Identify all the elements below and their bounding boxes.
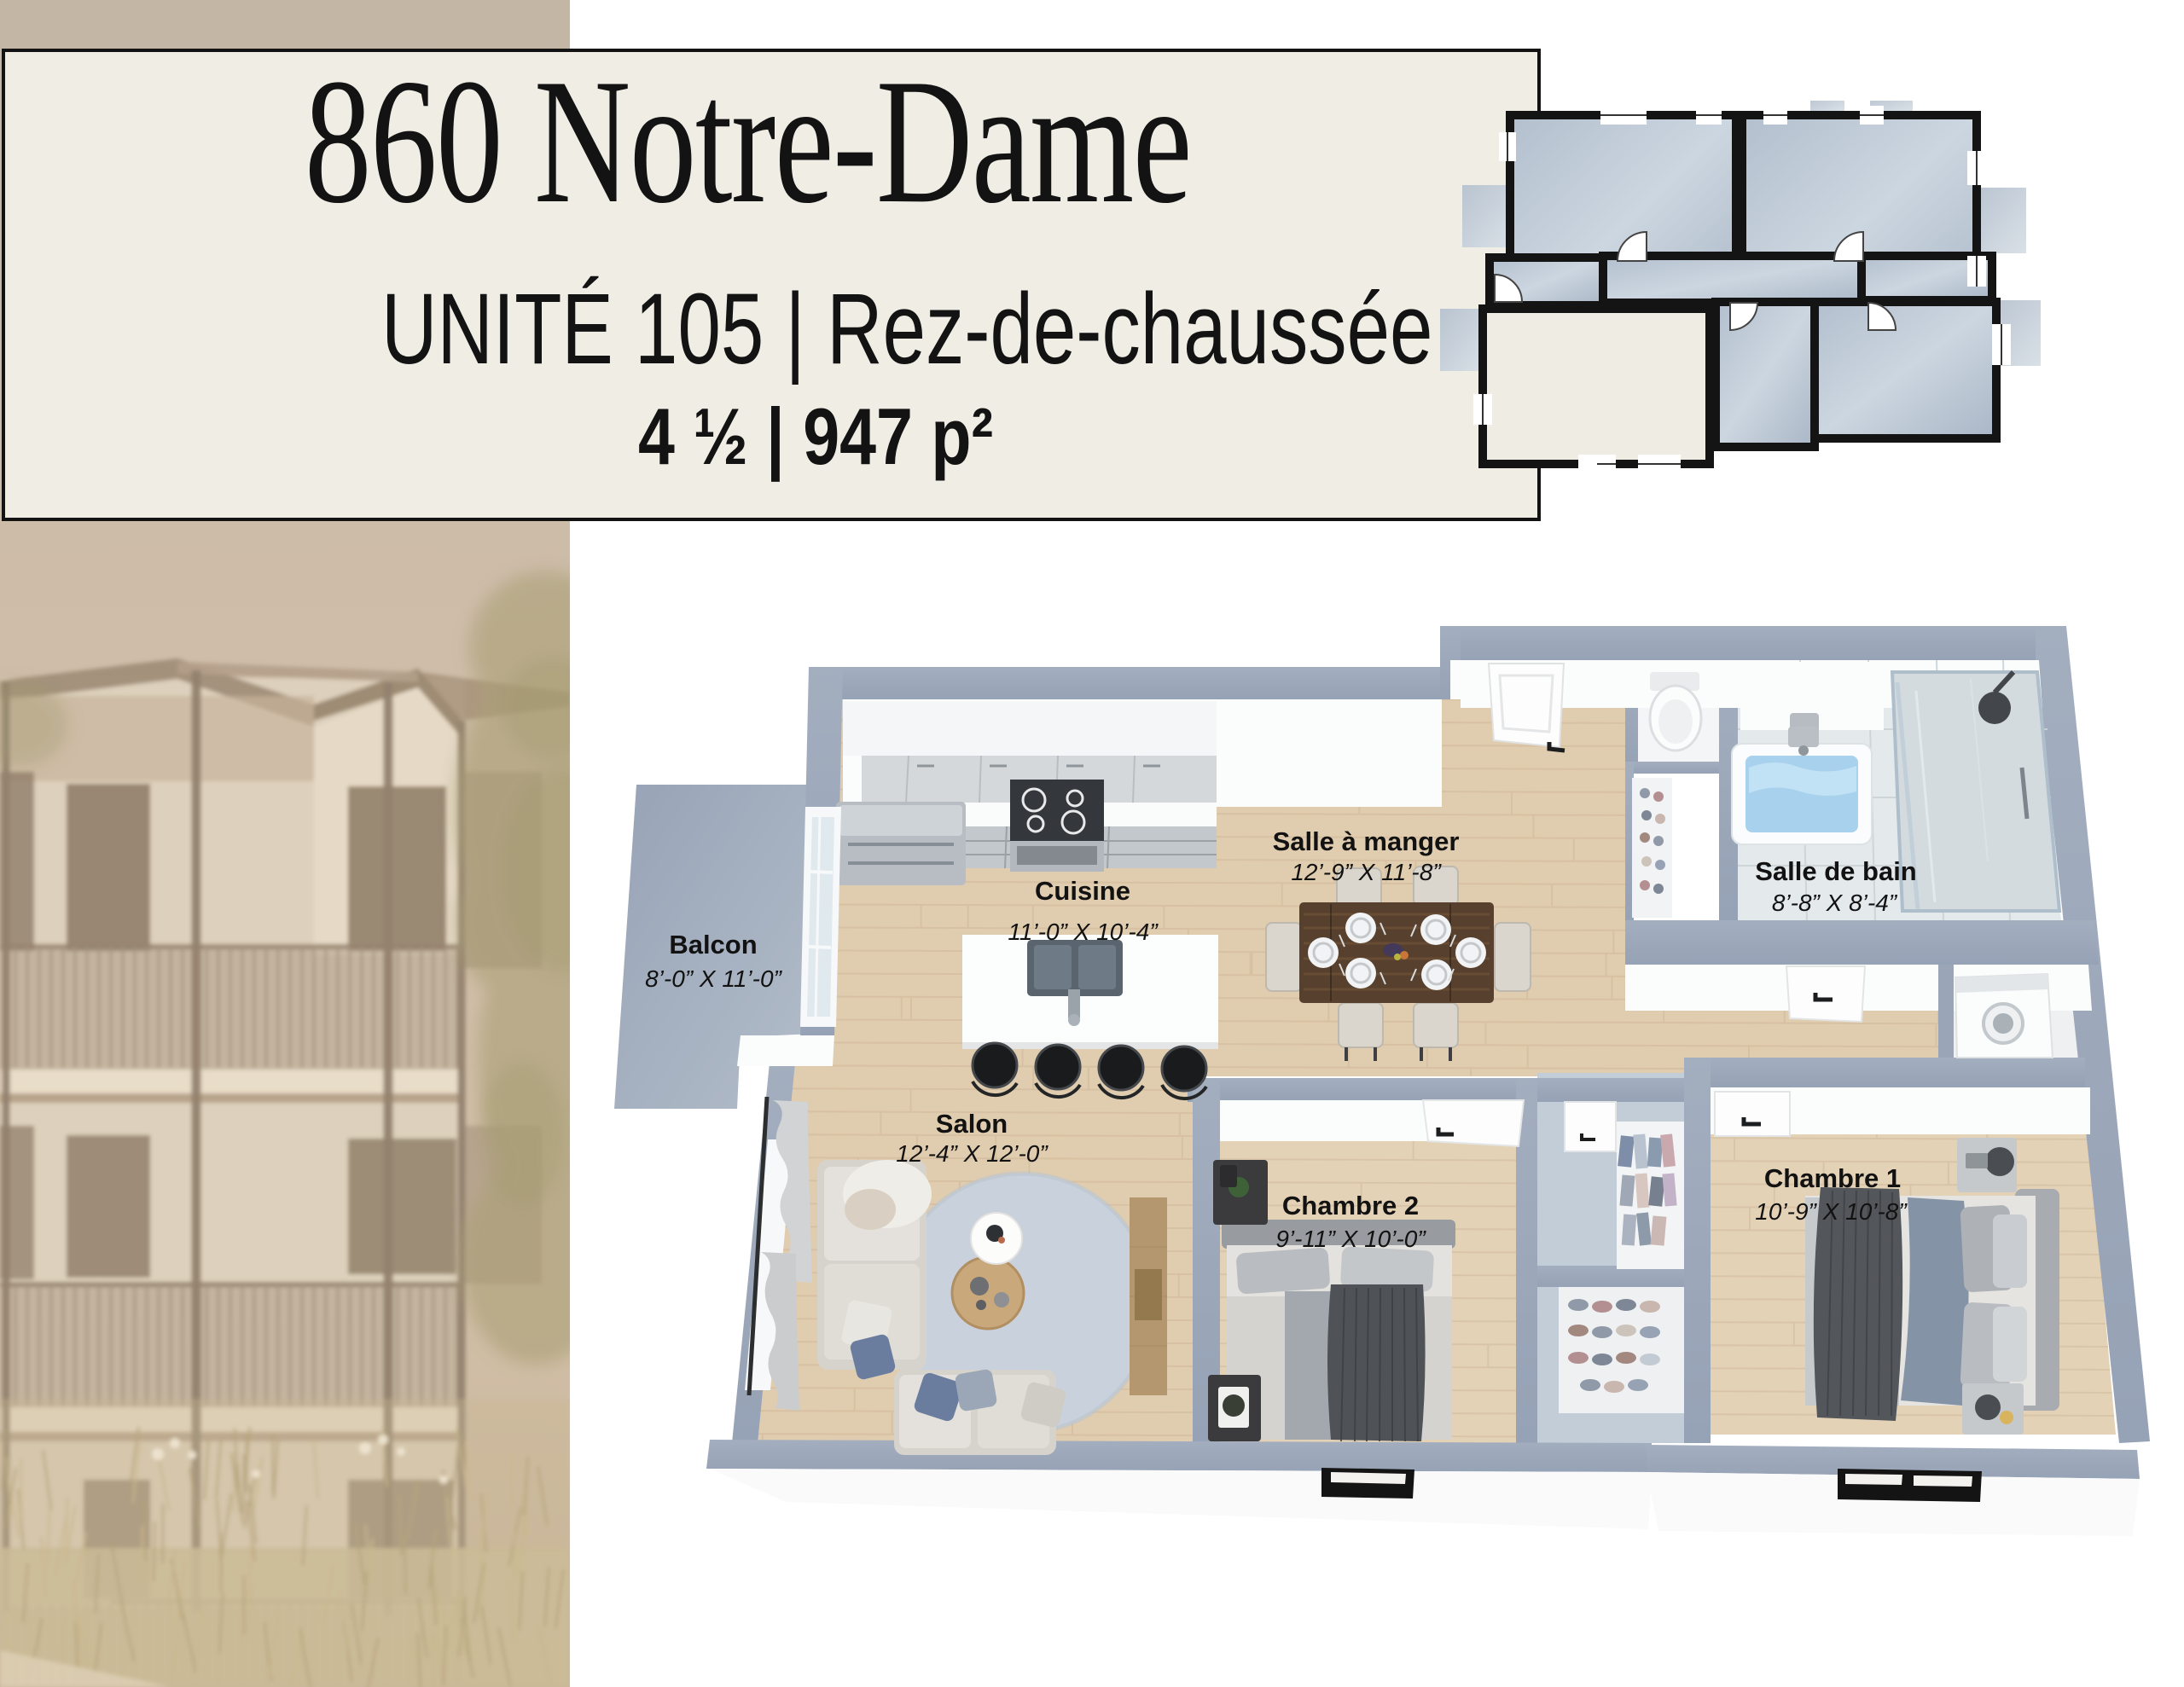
- svg-text:Balcon: Balcon: [669, 930, 757, 959]
- svg-text:8’-0” X 11’-0”: 8’-0” X 11’-0”: [645, 965, 782, 992]
- svg-text:Chambre 2: Chambre 2: [1282, 1191, 1419, 1220]
- svg-text:Salon: Salon: [936, 1109, 1008, 1139]
- svg-text:8’-8” X 8’-4”: 8’-8” X 8’-4”: [1772, 890, 1898, 916]
- svg-text:Salle à manger: Salle à manger: [1273, 826, 1460, 856]
- svg-text:9’-11” X 10’-0”: 9’-11” X 10’-0”: [1275, 1226, 1426, 1252]
- svg-text:12’-9” X 11’-8”: 12’-9” X 11’-8”: [1291, 859, 1442, 885]
- svg-text:Salle de bain: Salle de bain: [1755, 856, 1917, 886]
- svg-text:11’-0” X 10’-4”: 11’-0” X 10’-4”: [1008, 919, 1159, 945]
- svg-text:10’-9” X 10’-8”: 10’-9” X 10’-8”: [1755, 1198, 1908, 1225]
- svg-text:Chambre 1: Chambre 1: [1764, 1163, 1901, 1193]
- svg-text:12’-4” X 12’-0”: 12’-4” X 12’-0”: [896, 1140, 1048, 1167]
- svg-text:Cuisine: Cuisine: [1035, 876, 1130, 906]
